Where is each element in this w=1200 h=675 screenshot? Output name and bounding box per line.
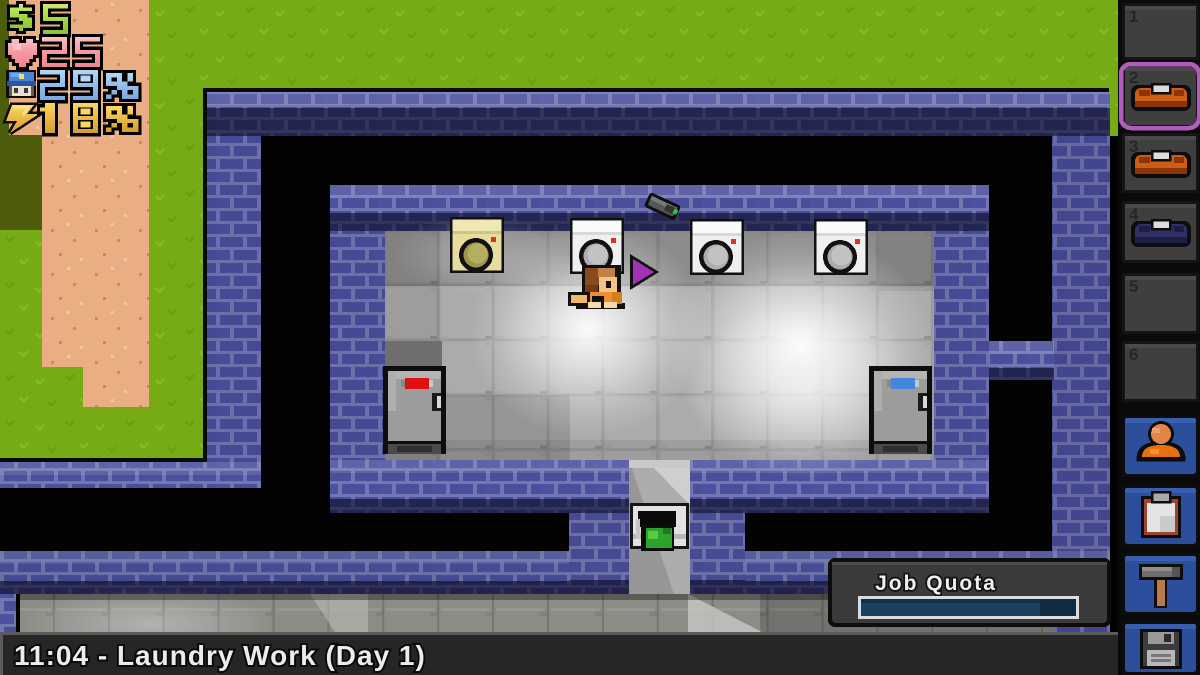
svg-text:Job Quota: Job Quota xyxy=(875,572,997,595)
svg-text:2: 2 xyxy=(1129,68,1138,87)
svg-text:1: 1 xyxy=(1129,7,1138,26)
svg-text:11:04 - Laundry Work (Day 1): 11:04 - Laundry Work (Day 1) xyxy=(14,640,426,671)
svg-text:6: 6 xyxy=(1129,345,1138,364)
svg-text:5: 5 xyxy=(1129,277,1138,296)
